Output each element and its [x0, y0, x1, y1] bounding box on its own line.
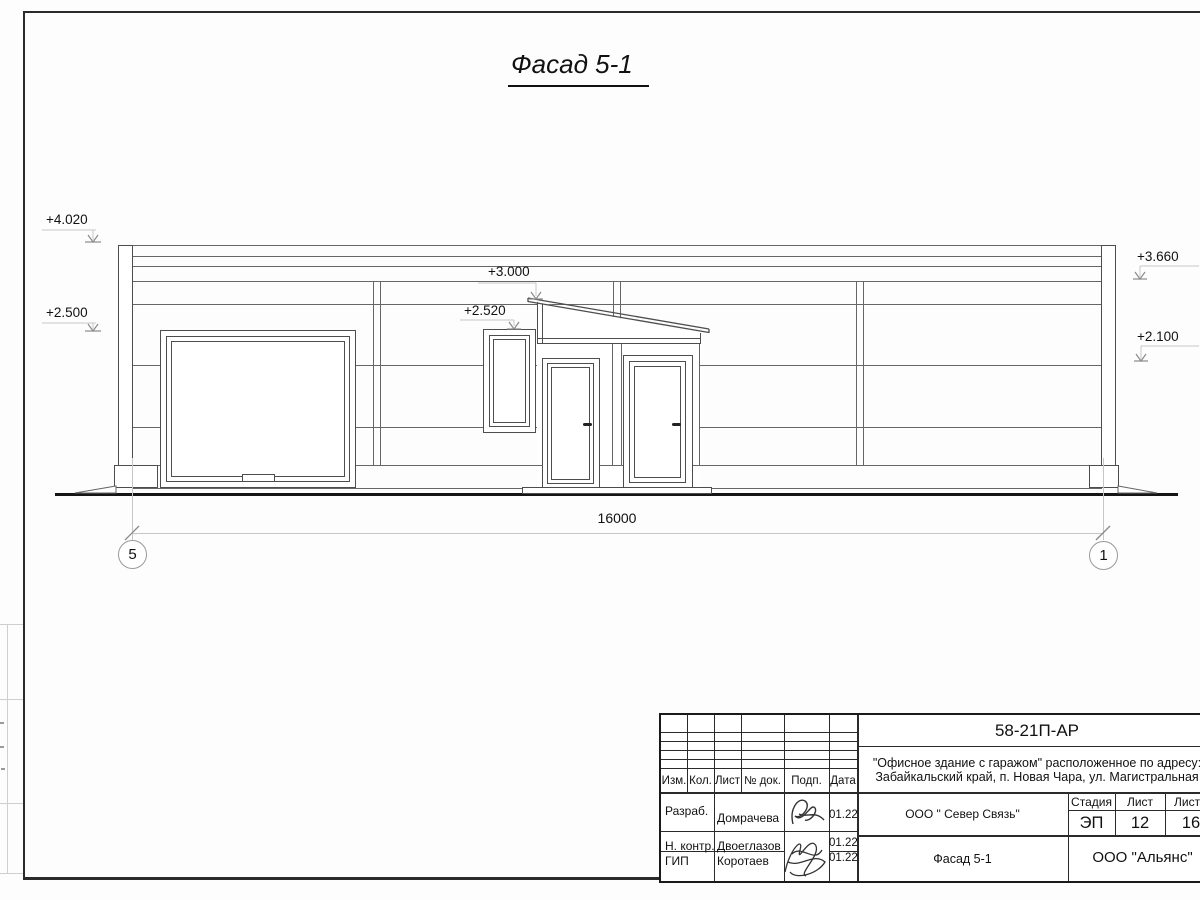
- tb-hline: [857, 746, 1200, 747]
- wall-course-line: [133, 304, 1102, 305]
- project-name-line2: Забайкальский край, п. Новая Чара, ул. М…: [859, 770, 1200, 784]
- view-title: Фасад 5-1: [508, 49, 649, 87]
- tb-header-list: Лист: [714, 773, 741, 789]
- margin-strip-line: [0, 803, 23, 804]
- margin-strip-line: [0, 873, 23, 874]
- elevation-arrow: [478, 283, 543, 299]
- signer-name: Двоеглазов: [717, 839, 783, 853]
- sheet-header: Лист: [1115, 795, 1165, 809]
- tb-hline: [661, 732, 857, 733]
- tb-header-kol: Кол.: [687, 773, 714, 789]
- tb-header-doc: № док.: [741, 773, 784, 789]
- door-mullion-line: [612, 344, 613, 465]
- garage-door-leaf: [171, 341, 345, 477]
- tb-hline: [661, 750, 857, 751]
- elevation-arrow: [42, 230, 101, 242]
- view-title-cell: Фасад 5-1: [857, 851, 1068, 867]
- window-glass: [493, 339, 526, 423]
- margin-strip-line: [0, 624, 23, 625]
- left-ramp: [75, 486, 116, 493]
- wall-course-line: [133, 256, 1102, 257]
- tb-hline: [661, 741, 857, 742]
- sheet-number: 12: [1115, 812, 1165, 834]
- plinth-line-segment: [537, 465, 543, 466]
- tb-hline: [661, 792, 1200, 794]
- signer-name: Коротаев: [717, 854, 783, 868]
- axis-1-line: [1103, 458, 1104, 540]
- frame-top-border: [23, 11, 1200, 13]
- axis-bubble-5: 5: [118, 540, 147, 569]
- signer-date: 01.22: [829, 852, 857, 865]
- tb-header-data: Дата: [829, 773, 857, 789]
- tb-hline: [1068, 810, 1200, 811]
- left-column-base: [114, 465, 158, 488]
- title-block: Изм. Кол. Лист № док. Подп. Дата Разраб.…: [659, 713, 1200, 883]
- tb-header-podp: Подп.: [784, 773, 829, 789]
- tb-header-izm: Изм.: [661, 773, 687, 789]
- door-mullion-line: [621, 344, 622, 465]
- door-1-handle: [583, 423, 592, 426]
- tb-hline: [661, 768, 857, 769]
- elevation-arrow: [1134, 346, 1199, 361]
- signer-role: ГИП: [665, 854, 714, 868]
- signer-date: 01.22: [829, 809, 857, 822]
- panel-joint-line: [863, 281, 864, 465]
- elevation-label-right-top: +3.660: [1137, 249, 1179, 264]
- door-2-handle: [672, 423, 681, 426]
- contractor-name: ООО " Север Связь": [857, 806, 1068, 822]
- elevation-label-canopy: +3.000: [488, 264, 530, 279]
- signature-scribble: [780, 830, 830, 882]
- plinth-line-segment: [693, 465, 703, 466]
- company-name: ООО "Альянс": [1068, 848, 1200, 868]
- margin-table-mark: [1, 768, 5, 770]
- plinth-line-segment: [600, 465, 623, 466]
- elevation-arrow: [460, 320, 521, 329]
- porch-right-post-line: [699, 344, 700, 465]
- stage-value: ЭП: [1068, 812, 1115, 834]
- tb-hline: [857, 835, 1200, 837]
- panel-joint-line: [856, 281, 857, 465]
- panel-joint-line: [380, 281, 381, 465]
- elevation-label-right-mid: +2.100: [1137, 329, 1179, 344]
- right-corner-column: [1101, 245, 1116, 466]
- tb-hline: [661, 759, 857, 760]
- right-ramp: [1118, 486, 1157, 493]
- wall-course-line: [133, 281, 1102, 282]
- entrance-step: [522, 487, 712, 494]
- stage-header: Стадия: [1068, 795, 1115, 809]
- dimension-line: [132, 533, 1103, 534]
- dimension-value: 16000: [577, 510, 657, 526]
- margin-table-mark: [0, 746, 4, 748]
- document-code: 58-21П-АР: [857, 720, 1200, 742]
- sheets-total: 16: [1165, 812, 1200, 834]
- panel-joint-line: [373, 281, 374, 465]
- elevation-arrow: [42, 323, 101, 331]
- elevation-arrow: [1133, 266, 1199, 279]
- left-corner-column: [118, 245, 133, 466]
- margin-strip-line: [0, 699, 23, 700]
- parapet-top-line: [119, 245, 1115, 246]
- margin-table-mark: [0, 722, 4, 724]
- elevation-label-window: +2.520: [464, 303, 506, 318]
- right-column-base: [1089, 465, 1119, 488]
- project-name-line1: "Офисное здание с гаражом" расположенное…: [859, 756, 1200, 770]
- tb-vline: [714, 715, 715, 881]
- entrance-door-2-panel: [634, 366, 681, 478]
- signature-scribble: [785, 794, 828, 832]
- sheets-header: Листов: [1165, 795, 1200, 809]
- margin-strip-line: [7, 624, 8, 873]
- elevation-label-left-top: +4.020: [46, 212, 88, 227]
- frame-left-border: [23, 11, 25, 880]
- signer-name: Домрачева: [717, 811, 783, 825]
- elevation-label-left-mid: +2.500: [46, 305, 88, 320]
- axis-5-line: [132, 458, 133, 540]
- wall-course-line: [133, 266, 1102, 267]
- garage-door-handle: [242, 474, 275, 482]
- axis-bubble-1: 1: [1089, 541, 1118, 570]
- signer-role: Н. контр.: [665, 839, 717, 853]
- signer-date: 01.22: [829, 837, 857, 850]
- signer-role: Разраб.: [665, 804, 714, 818]
- drawing-sheet: { "sheet": { "title": "Фасад 5-1" }, "fa…: [0, 0, 1200, 900]
